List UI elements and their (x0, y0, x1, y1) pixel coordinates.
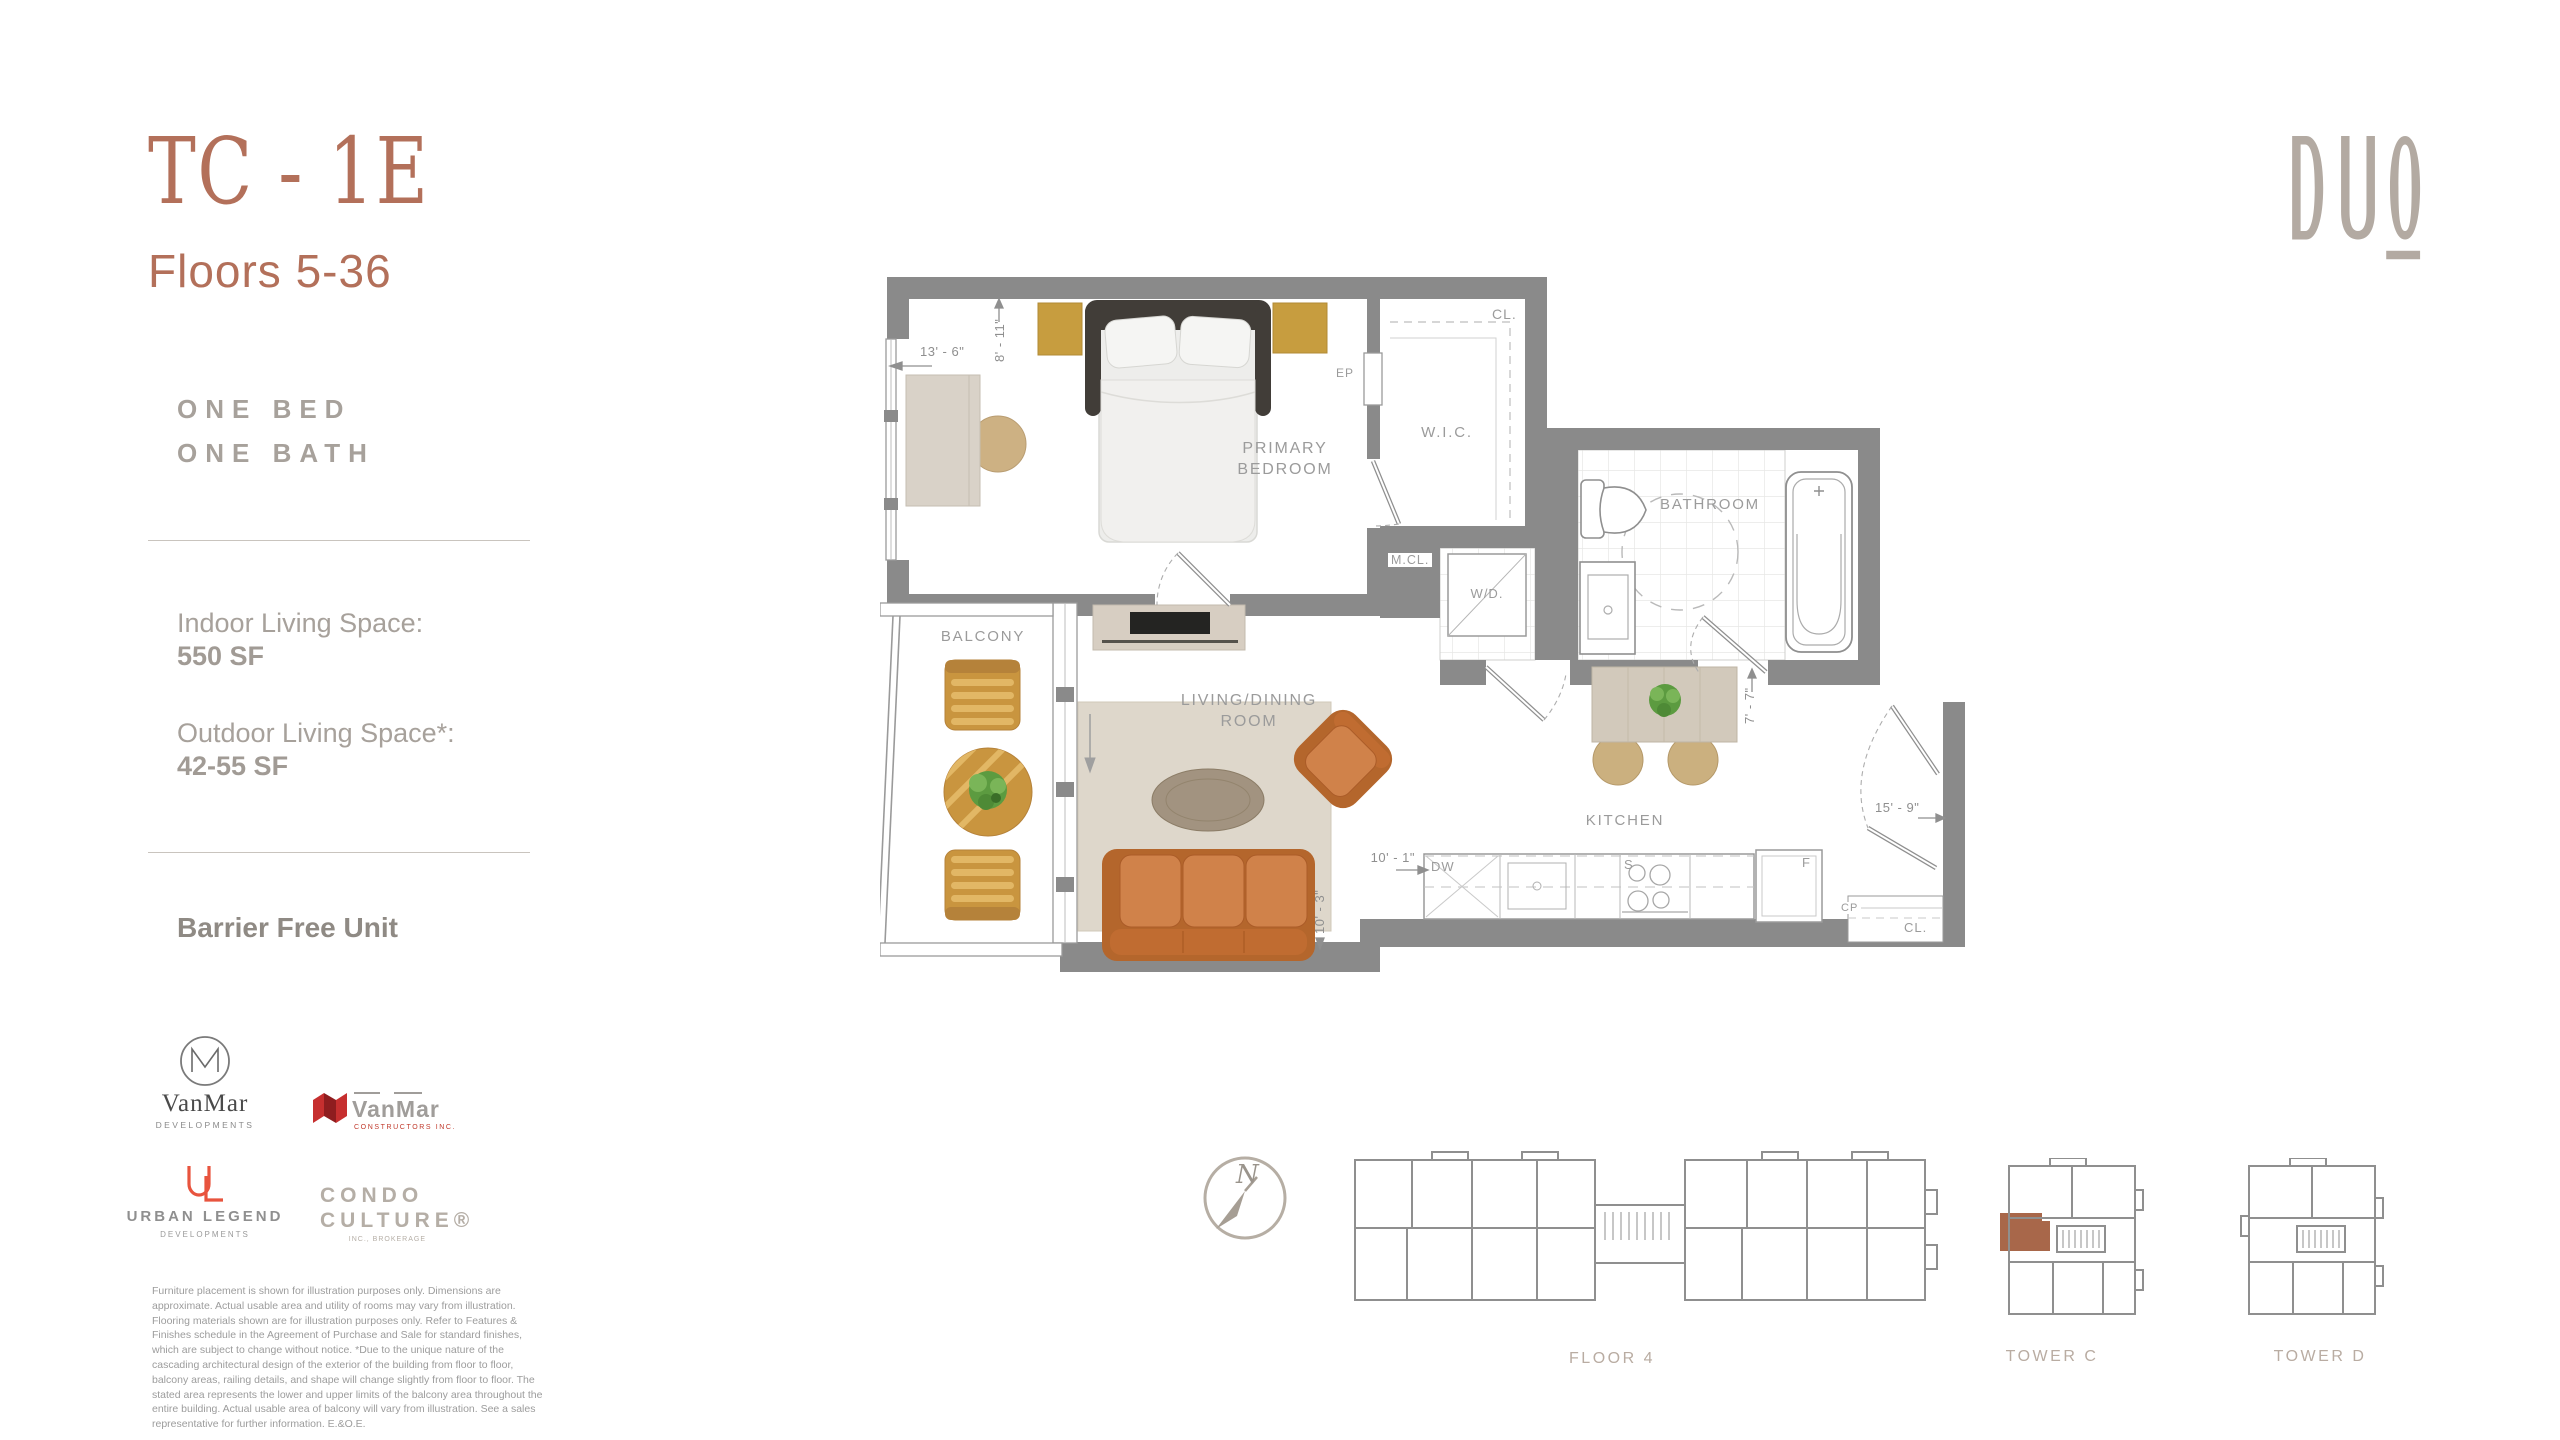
unit-type-bath: ONE BATH (177, 438, 375, 469)
balcony-chair (945, 660, 1020, 730)
keyplan-tower-d (2235, 1158, 2385, 1323)
kitchen-counter (1424, 854, 1754, 919)
dim-bedroom-width: 13' - 6" (920, 344, 964, 359)
dim-living-width: 10' - 1" (1358, 850, 1415, 865)
duo-logo (2292, 136, 2424, 263)
fixture-label-stove: S (1624, 857, 1634, 872)
outdoor-space-value: 42-55 SF (177, 751, 288, 782)
indoor-space-value: 550 SF (177, 641, 264, 672)
balcony-chair (945, 850, 1020, 920)
dim-bedroom-depth: 8' - 11" (992, 319, 1007, 362)
keyplan-tower-c-label: TOWER C (1952, 1348, 2152, 1366)
tv-console (1093, 605, 1245, 650)
barrier-free-note: Barrier Free Unit (177, 912, 398, 944)
floors-range: Floors 5-36 (148, 244, 392, 298)
room-label-living-dining: LIVING/DINING ROOM (1174, 690, 1324, 732)
keyplan-floor4 (1352, 1140, 1972, 1325)
fixture-label-fridge: F (1802, 855, 1811, 870)
urban-legend-name: URBAN LEGEND (125, 1208, 285, 1225)
legal-disclaimer: Furniture placement is shown for illustr… (152, 1284, 544, 1432)
fixture-label-dw: DW (1431, 859, 1455, 874)
fixture-label-cp: CP (1838, 902, 1861, 914)
desk (906, 375, 980, 506)
vanmar-constructors-mark-icon (312, 1090, 348, 1130)
dim-living-depth: 10' - 3" (1312, 890, 1327, 934)
condo-culture-line1: CONDO (320, 1184, 423, 1208)
fixture-label-mcl: M.CL. (1388, 553, 1432, 567)
dim-kitchen-width: 15' - 9" (1875, 800, 1919, 815)
overbar (394, 1092, 422, 1094)
fixture-label-ep: EP (1336, 366, 1354, 380)
fixture-label-closet-top: CL. (1492, 306, 1517, 322)
vanmar-developments-monogram-icon (178, 1034, 232, 1088)
unit-type-bed: ONE BED (177, 394, 351, 425)
keyplan-floor4-label: FLOOR 4 (1512, 1350, 1712, 1368)
coffee-table (1152, 769, 1264, 831)
condo-culture-sub: INC., BROKERAGE (320, 1236, 426, 1243)
room-label-primary-bedroom: PRIMARY BEDROOM (1210, 438, 1360, 480)
room-label-bathroom: BATHROOM (1650, 494, 1770, 515)
compass-north-label: N (1236, 1160, 1259, 1190)
condo-culture-line2: CULTURE® (320, 1209, 474, 1233)
ep-panel (1364, 353, 1382, 405)
divider (148, 540, 530, 541)
bathtub (1786, 472, 1852, 652)
bed (1085, 300, 1271, 542)
overbar (354, 1092, 380, 1094)
unit-code-title: TC - 1E (148, 118, 430, 225)
vanmar-constructors-sub: CONSTRUCTORS INC. (354, 1124, 456, 1131)
floor-plan-drawing (880, 262, 1980, 982)
room-label-wic: W.I.C. (1407, 422, 1487, 443)
keyplan-tower-c (1995, 1158, 2145, 1323)
urban-legend-sub: DEVELOPMENTS (125, 1230, 285, 1239)
fixture-label-closet-entry: CL. (1904, 920, 1927, 935)
keyplan-tower-d-label: TOWER D (2220, 1348, 2420, 1366)
sofa (1102, 849, 1315, 961)
fridge (1756, 850, 1822, 922)
outdoor-space-label: Outdoor Living Space*: (177, 718, 455, 749)
fixture-label-wd: W/D. (1452, 586, 1522, 601)
vanmar-developments-sub: DEVELOPMENTS (125, 1120, 285, 1130)
indoor-space-label: Indoor Living Space: (177, 608, 423, 639)
entry-closet (1848, 896, 1943, 942)
floorplan-sheet: TC - 1E Floors 5-36 ONE BED ONE BATH Ind… (0, 0, 2560, 1440)
dim-bath-depth: 7' - 7" (1742, 687, 1757, 724)
room-label-kitchen: KITCHEN (1575, 810, 1675, 831)
vanmar-constructors-name: VanMar (352, 1096, 440, 1123)
urban-legend-monogram-icon (182, 1164, 230, 1206)
wic-shelving (1390, 322, 1510, 520)
floor-plan: 13' - 6" 8' - 11" PRIMARY BEDROOM EP W.I… (880, 262, 1980, 982)
room-label-balcony: BALCONY (928, 626, 1038, 647)
divider (148, 852, 530, 853)
bathroom-vanity (1580, 562, 1635, 654)
vanmar-developments-name: VanMar (125, 1090, 285, 1118)
